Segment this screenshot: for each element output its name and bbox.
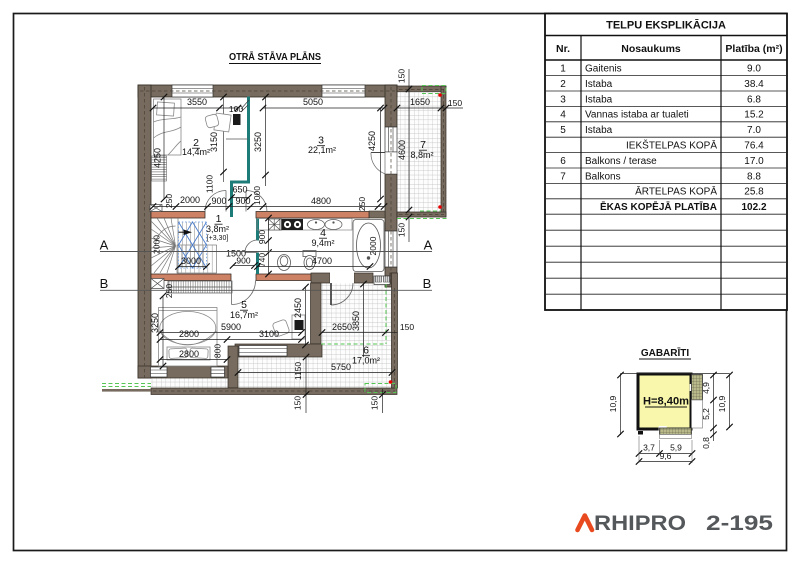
svg-text:150: 150 [293, 396, 303, 410]
svg-text:150: 150 [397, 69, 407, 83]
svg-text:B: B [423, 276, 432, 291]
svg-text:GABARĪTI: GABARĪTI [641, 347, 690, 359]
svg-text:4,9: 4,9 [701, 382, 711, 394]
svg-text:900: 900 [236, 256, 250, 266]
svg-text:9,6: 9,6 [660, 451, 672, 461]
svg-text:1150: 1150 [293, 362, 303, 381]
svg-text:B: B [100, 276, 109, 291]
svg-text:A: A [424, 238, 433, 253]
svg-text:3100: 3100 [259, 329, 279, 339]
svg-text:Gaitenis: Gaitenis [585, 63, 622, 74]
svg-text:6: 6 [560, 156, 566, 167]
svg-text:2450: 2450 [293, 298, 303, 318]
svg-text:15.2: 15.2 [744, 110, 764, 121]
svg-text:Istaba: Istaba [585, 125, 613, 136]
svg-text:0,8: 0,8 [701, 437, 711, 449]
svg-text:RHIPRO: RHIPRO [594, 511, 686, 535]
svg-text:1000: 1000 [252, 186, 262, 205]
svg-text:2800: 2800 [179, 329, 199, 339]
svg-text:[+3,30]: [+3,30] [207, 235, 229, 242]
svg-text:Balkons / terase: Balkons / terase [585, 156, 657, 167]
svg-text:16,7m²: 16,7m² [230, 310, 258, 320]
svg-text:250: 250 [357, 197, 367, 211]
svg-text:900: 900 [257, 230, 267, 244]
svg-text:H=8,40m: H=8,40m [643, 396, 689, 408]
svg-text:3: 3 [560, 94, 566, 105]
svg-text:3,7: 3,7 [643, 443, 655, 453]
svg-text:3250: 3250 [150, 313, 160, 333]
svg-text:7: 7 [560, 171, 566, 182]
svg-text:Vannas istaba ar tualeti: Vannas istaba ar tualeti [585, 110, 689, 121]
svg-text:ĒKAS KOPĒJĀ PLATĪBA: ĒKAS KOPĒJĀ PLATĪBA [600, 201, 717, 213]
svg-text:Istaba: Istaba [585, 94, 613, 105]
svg-text:5,2: 5,2 [701, 408, 711, 420]
svg-text:8.8: 8.8 [747, 171, 761, 182]
svg-text:3850: 3850 [351, 311, 361, 331]
svg-text:Platība (m²): Platība (m²) [725, 43, 782, 55]
svg-text:1100: 1100 [205, 175, 215, 194]
svg-text:1650: 1650 [410, 97, 430, 107]
svg-text:17,0m²: 17,0m² [352, 356, 380, 366]
svg-text:22,1m²: 22,1m² [308, 145, 336, 155]
svg-text:3,8m²: 3,8m² [206, 224, 229, 234]
svg-text:2000: 2000 [180, 195, 200, 205]
svg-text:Nr.: Nr. [556, 43, 570, 55]
svg-text:150: 150 [400, 322, 414, 332]
svg-text:Balkons: Balkons [585, 171, 621, 182]
svg-text:9,4m²: 9,4m² [311, 238, 334, 248]
svg-text:150: 150 [448, 98, 462, 108]
svg-text:4800: 4800 [311, 196, 331, 206]
svg-text:14,4m²: 14,4m² [182, 147, 210, 157]
svg-text:2-195: 2-195 [706, 511, 773, 535]
svg-text:10,9: 10,9 [608, 395, 618, 412]
svg-text:A: A [100, 238, 109, 253]
svg-text:4600: 4600 [397, 140, 407, 160]
svg-text:250: 250 [164, 194, 174, 208]
svg-text:5050: 5050 [303, 97, 323, 107]
svg-text:4: 4 [560, 110, 566, 121]
svg-text:5: 5 [560, 125, 566, 136]
svg-text:4250: 4250 [153, 148, 163, 168]
svg-text:800: 800 [213, 344, 223, 358]
svg-text:3150: 3150 [209, 132, 219, 152]
svg-text:6.8: 6.8 [747, 94, 761, 105]
svg-text:900: 900 [211, 196, 226, 206]
svg-text:Istaba: Istaba [585, 79, 613, 90]
svg-text:8,8m²: 8,8m² [410, 150, 433, 160]
svg-text:5900: 5900 [221, 322, 241, 332]
svg-text:4250: 4250 [367, 131, 377, 151]
svg-text:Nosaukums: Nosaukums [621, 43, 681, 55]
svg-text:102.2: 102.2 [741, 202, 766, 213]
svg-text:150: 150 [370, 396, 380, 410]
svg-text:17.0: 17.0 [744, 156, 764, 167]
svg-text:OTRĀ STĀVA PLĀNS: OTRĀ STĀVA PLĀNS [229, 51, 321, 63]
svg-text:3000: 3000 [181, 256, 201, 266]
svg-text:3250: 3250 [253, 132, 263, 152]
svg-text:3550: 3550 [187, 97, 207, 107]
svg-text:5,9: 5,9 [670, 443, 682, 453]
svg-text:ĀRTELPAS KOPĀ: ĀRTELPAS KOPĀ [635, 186, 717, 198]
svg-text:76.4: 76.4 [744, 141, 764, 152]
svg-text:2000: 2000 [368, 236, 378, 255]
svg-text:IEKŠTELPAS KOPĀ: IEKŠTELPAS KOPĀ [626, 139, 717, 152]
svg-text:150: 150 [397, 223, 407, 237]
svg-text:9.0: 9.0 [747, 63, 761, 74]
svg-text:1: 1 [560, 63, 566, 74]
svg-text:25.8: 25.8 [744, 187, 764, 198]
svg-text:TELPU EKSPLIKĀCIJA: TELPU EKSPLIKĀCIJA [606, 20, 726, 32]
svg-text:10,9: 10,9 [717, 395, 727, 412]
svg-text:2650: 2650 [332, 322, 352, 332]
svg-text:2: 2 [560, 79, 566, 90]
svg-text:4700: 4700 [312, 256, 332, 266]
svg-text:650: 650 [232, 185, 247, 195]
svg-text:38.4: 38.4 [744, 79, 764, 90]
svg-text:7.0: 7.0 [747, 125, 761, 136]
svg-text:2800: 2800 [179, 349, 199, 359]
svg-text:5750: 5750 [331, 362, 351, 372]
svg-text:250: 250 [164, 284, 174, 298]
